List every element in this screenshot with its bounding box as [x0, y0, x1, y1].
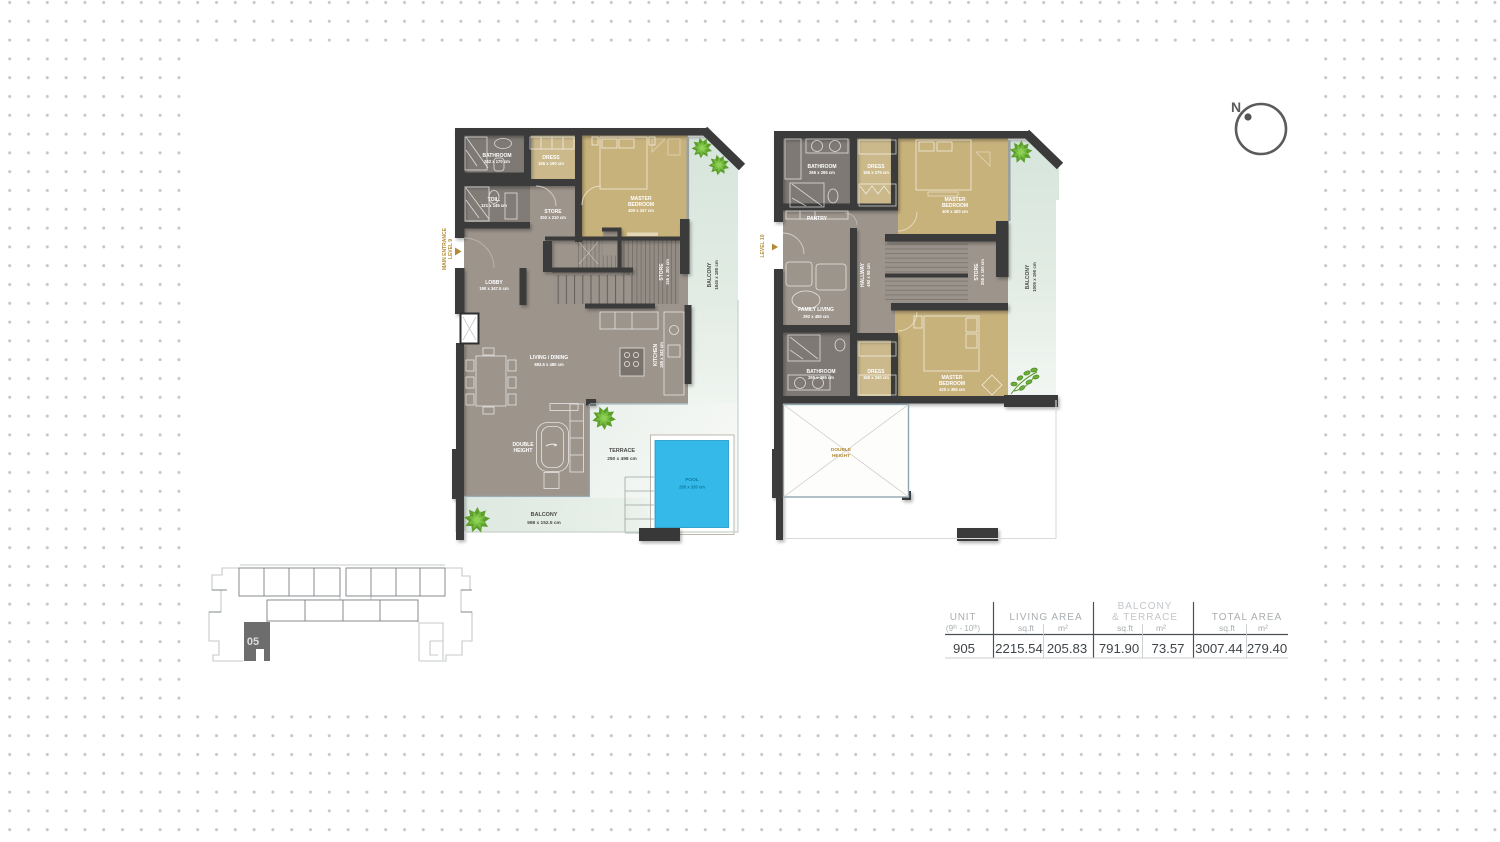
svg-text:BALCONY: BALCONY — [531, 512, 558, 518]
svg-text:BALCONY: BALCONY — [1118, 601, 1173, 612]
svg-text:sq.ft: sq.ft — [1117, 623, 1134, 633]
svg-text:400 x 347 cm: 400 x 347 cm — [628, 208, 654, 213]
svg-text:DOUBLE: DOUBLE — [831, 447, 852, 453]
svg-text:155 x 300 cm: 155 x 300 cm — [665, 259, 670, 285]
svg-text:905: 905 — [953, 641, 975, 656]
svg-text:185 x 342 cm: 185 x 342 cm — [659, 342, 664, 368]
svg-text:279.40: 279.40 — [1247, 641, 1287, 656]
svg-text:400 x 400 cm: 400 x 400 cm — [942, 209, 968, 214]
svg-text:TERRACE: TERRACE — [609, 448, 635, 454]
svg-text:PANTRY: PANTRY — [807, 216, 828, 222]
svg-text:LIVING / DINING: LIVING / DINING — [530, 355, 568, 361]
svg-text:598 x 152.5 cm: 598 x 152.5 cm — [527, 520, 561, 526]
svg-text:265 x 365 cm: 265 x 365 cm — [808, 375, 834, 380]
svg-text:2215.54: 2215.54 — [995, 641, 1043, 656]
svg-text:202 x 210 cm: 202 x 210 cm — [540, 215, 566, 220]
svg-text:m²: m² — [1058, 623, 1068, 633]
svg-text:HEIGHT: HEIGHT — [514, 448, 533, 454]
svg-text:285 x 335 cm: 285 x 335 cm — [679, 485, 705, 490]
svg-text:m²: m² — [1156, 623, 1166, 633]
svg-text:& TERRACE: & TERRACE — [1112, 612, 1178, 623]
svg-text:LEVEL 9: LEVEL 9 — [448, 239, 454, 259]
svg-text:FAMILY LIVING: FAMILY LIVING — [798, 307, 834, 313]
svg-text:165 x 190 cm: 165 x 190 cm — [538, 161, 564, 166]
svg-text:BALCONY: BALCONY — [707, 262, 713, 287]
svg-text:TOTAL AREA: TOTAL AREA — [1212, 612, 1282, 623]
svg-text:HEIGHT: HEIGHT — [832, 453, 850, 459]
svg-text:BALCONY: BALCONY — [1025, 264, 1031, 289]
svg-text:LIVING AREA: LIVING AREA — [1009, 612, 1082, 623]
svg-text:265 x 265 cm: 265 x 265 cm — [809, 170, 835, 175]
svg-text:205.83: 205.83 — [1047, 641, 1087, 656]
svg-text:255 x 100 cm: 255 x 100 cm — [980, 259, 985, 285]
svg-text:683.5 x 480 cm: 683.5 x 480 cm — [534, 362, 564, 367]
svg-text:242 x 170 cm: 242 x 170 cm — [484, 159, 510, 164]
svg-text:sq.ft: sq.ft — [1219, 623, 1236, 633]
svg-text:m²: m² — [1258, 623, 1268, 633]
svg-text:165 x 275 cm: 165 x 275 cm — [863, 170, 889, 175]
svg-text:3007.44: 3007.44 — [1195, 641, 1243, 656]
svg-text:165 x 240 cm: 165 x 240 cm — [863, 375, 889, 380]
svg-text:LEVEL 10: LEVEL 10 — [760, 234, 766, 257]
svg-text:190 x 347.5 cm: 190 x 347.5 cm — [479, 286, 509, 291]
svg-text:420 x 355 cm: 420 x 355 cm — [939, 387, 965, 392]
svg-text:250 x 498 cm: 250 x 498 cm — [607, 456, 637, 462]
svg-text:sq.ft: sq.ft — [1018, 623, 1035, 633]
svg-text:05: 05 — [247, 636, 259, 648]
svg-text:1005 x 190 cm: 1005 x 190 cm — [1032, 262, 1037, 292]
svg-text:N: N — [1231, 99, 1241, 115]
svg-text:791.90: 791.90 — [1099, 641, 1139, 656]
svg-text:73.57: 73.57 — [1151, 641, 1184, 656]
svg-text:492 x 98 cm: 492 x 98 cm — [866, 263, 871, 287]
svg-text:121 x 145 cm: 121 x 145 cm — [481, 203, 507, 208]
svg-text:292 x 455 cm: 292 x 455 cm — [803, 314, 829, 319]
svg-text:1845 x 180 cm: 1845 x 180 cm — [714, 260, 719, 290]
svg-text:POOL: POOL — [685, 477, 699, 483]
svg-text:UNIT: UNIT — [950, 612, 977, 623]
